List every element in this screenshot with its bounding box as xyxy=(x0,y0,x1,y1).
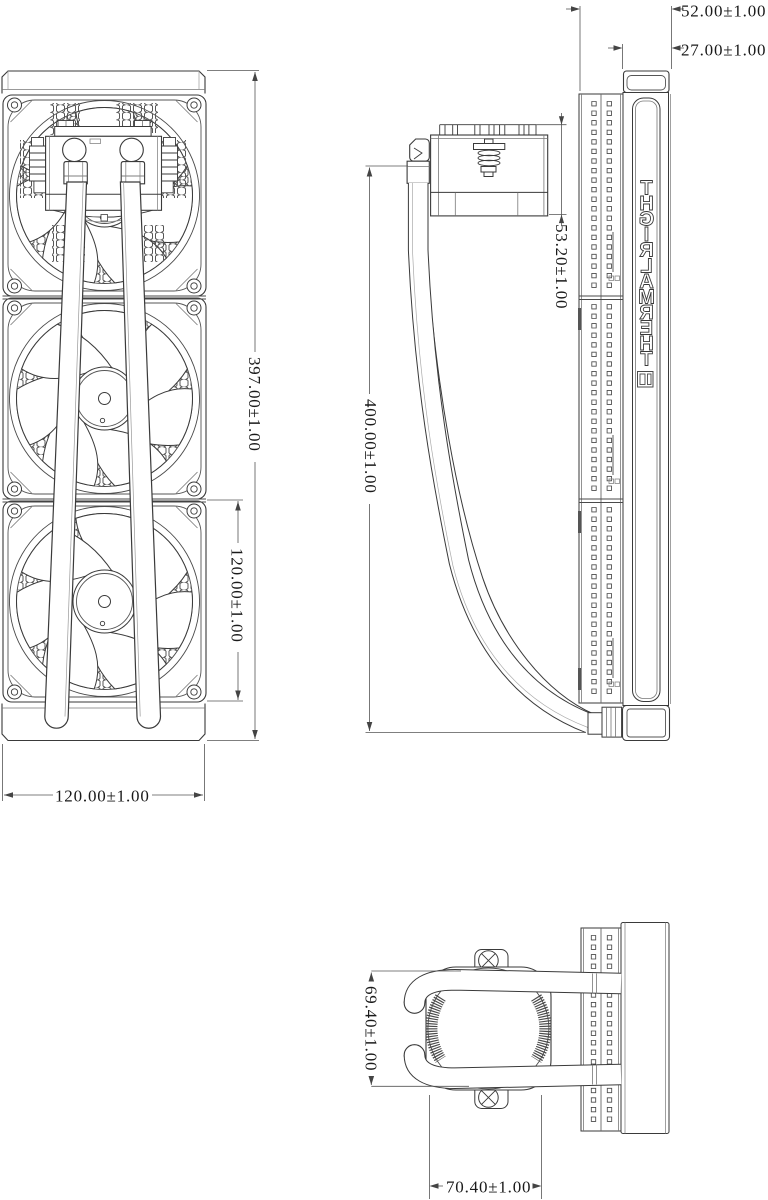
svg-text:52.00±1.00: 52.00±1.00 xyxy=(681,2,766,21)
svg-text:T: T xyxy=(640,349,652,371)
svg-text:69.40±1.00: 69.40±1.00 xyxy=(362,986,381,1071)
svg-text:397.00±1.00: 397.00±1.00 xyxy=(245,357,264,452)
svg-text:120.00±1.00: 120.00±1.00 xyxy=(55,787,150,806)
svg-text:400.00±1.00: 400.00±1.00 xyxy=(361,399,380,494)
svg-text:70.40±1.00: 70.40±1.00 xyxy=(446,1178,531,1197)
svg-text:53.20±1.00: 53.20±1.00 xyxy=(552,224,571,309)
svg-text:27.00±1.00: 27.00±1.00 xyxy=(681,41,766,60)
svg-text:120.00±1.00: 120.00±1.00 xyxy=(228,548,247,643)
